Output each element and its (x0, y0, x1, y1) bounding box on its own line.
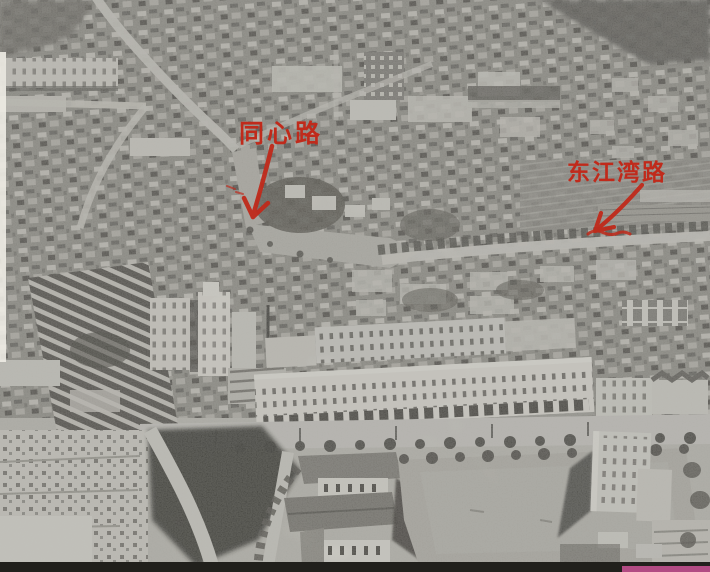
aerial-photo: 同心路 东江湾路 (0, 0, 710, 572)
road-label-tongxin: 同心路 (239, 120, 323, 148)
bottom-dark-strip (0, 562, 710, 572)
magenta-strip (622, 566, 710, 572)
road-label-dongjiangwan: 东江湾路 (567, 159, 667, 185)
photo-texture (0, 0, 710, 572)
aerial-photo-canvas: 同心路 东江湾路 (0, 0, 710, 572)
left-edge-strip (0, 52, 6, 362)
